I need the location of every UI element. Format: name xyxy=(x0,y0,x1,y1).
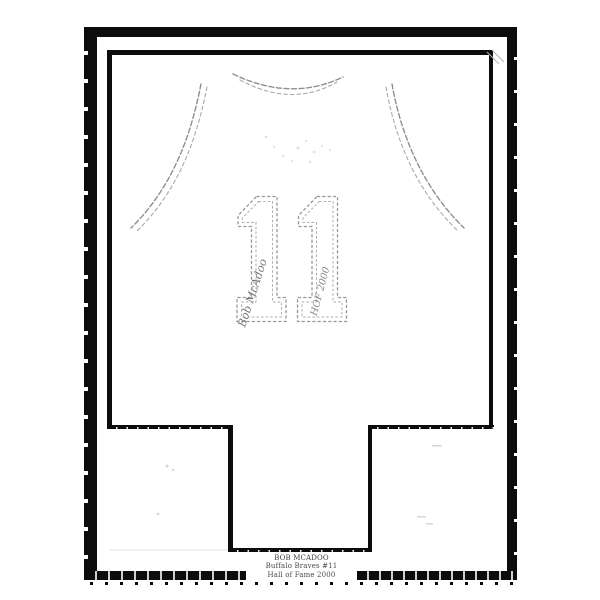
nameplate-team-number: Buffalo Braves #11 xyxy=(246,562,357,570)
mat-faint-specks xyxy=(110,445,442,550)
framed-jersey-picture: Bob McAdoo HOF 2000 BOB MCADOO Buffalo B… xyxy=(0,0,600,600)
chest-fabric-specks xyxy=(265,136,332,164)
nameplate-honor: Hall of Fame 2000 xyxy=(246,571,357,579)
nameplate: BOB MCADOO Buffalo Braves #11 Hall of Fa… xyxy=(246,554,357,579)
collar-outer-line xyxy=(233,74,343,89)
corner-hatch-marks xyxy=(487,50,504,64)
nameplate-player-name: BOB MCADOO xyxy=(246,554,357,562)
armhole-left-outer-line xyxy=(131,84,201,228)
armhole-right-outer-line xyxy=(392,84,464,228)
jersey-sketch: Bob McAdoo HOF 2000 xyxy=(0,0,600,600)
